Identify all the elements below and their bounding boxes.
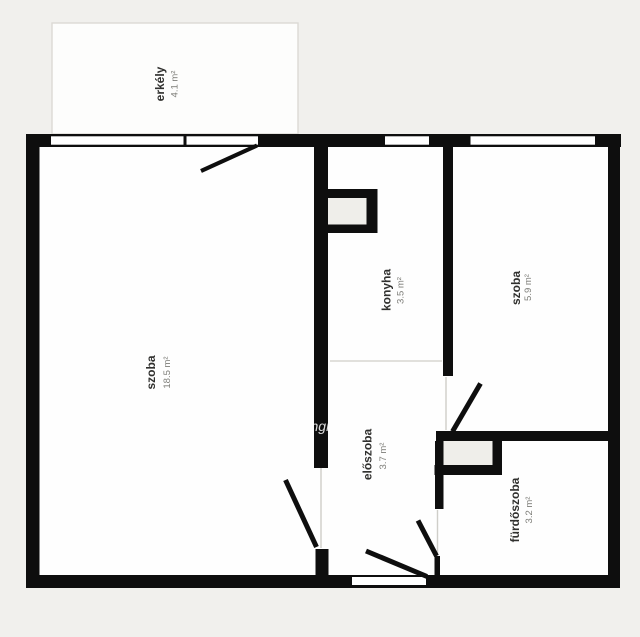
svg-text:ngi: ngi (311, 418, 331, 434)
svg-text:5.9 m²: 5.9 m² (523, 274, 534, 301)
svg-text:3.7 m²: 3.7 m² (378, 443, 389, 470)
svg-text:szoba: szoba (144, 355, 158, 389)
svg-text:konyha: konyha (380, 269, 394, 311)
svg-text:szoba: szoba (509, 271, 523, 305)
svg-text:fürdőszoba: fürdőszoba (508, 477, 522, 542)
svg-text:18.5 m²: 18.5 m² (162, 356, 173, 388)
svg-text:3.5 m²: 3.5 m² (396, 277, 407, 304)
svg-text:erkély: erkély (153, 66, 167, 101)
svg-text:4.1 m²: 4.1 m² (170, 71, 181, 98)
svg-text:előszoba: előszoba (361, 429, 375, 481)
svg-text:3.2 m²: 3.2 m² (524, 497, 535, 524)
